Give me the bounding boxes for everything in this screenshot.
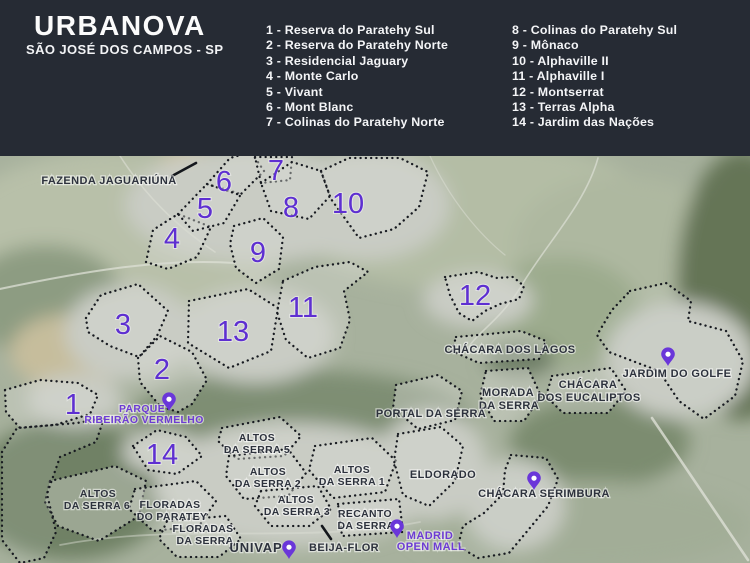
area-number-2: 2 [154,354,170,386]
header-banner: URBANOVA SÃO JOSÉ DOS CAMPOS - SP 1 - Re… [0,0,750,156]
map-label-floradas-do-paratey-1: FLORADAS [140,500,201,511]
map-label-altos-da-serra-6-2: DA SERRA 6 [64,501,130,512]
page-subtitle: SÃO JOSÉ DOS CAMPOS - SP [26,42,223,57]
map-label-univap: UNIVAP [230,540,283,555]
legend-item-9: 9 - Mônaco [512,38,677,53]
area-number-7: 7 [268,155,284,187]
legend-item-12: 12 - Montserrat [512,85,677,100]
map-label-floradas-da-serra-1: FLORADAS [173,524,234,535]
area-number-1: 1 [65,389,81,421]
map-label-chacara-dos-eucaliptos-2: DOS EUCALIPTOS [537,392,640,404]
area-number-6: 6 [216,166,232,198]
map-label-recanto-da-serra-2: DA SERRA [337,521,394,532]
legend-item-13: 13 - Terras Alpha [512,100,677,115]
map-label-jardim-do-golfe: JARDIM DO GOLFE [623,368,732,380]
map-label-altos-da-serra-1-1: ALTOS [334,465,370,476]
map-label-altos-da-serra-5-1: ALTOS [239,433,275,444]
map-label-chacara-dos-lagos: CHÁCARA DOS LAGOS [444,343,575,356]
map-label-altos-da-serra-2-1: ALTOS [250,467,286,478]
map-label-parque-ribeirao-vermelho-2: RIBEIRÃO VERMELHO [84,413,203,426]
map-label-chacara-serimbura: CHÁCARA SERIMBURA [478,487,610,500]
map-label-altos-da-serra-6-1: ALTOS [80,489,116,500]
legend-item-8: 8 - Colinas do Paratehy Sul [512,23,677,38]
legend-item-2: 2 - Reserva do Paratehy Norte [266,38,448,53]
area-number-4: 4 [164,223,180,255]
map-label-parque-ribeirao-vermelho-1: PARQUE [119,404,165,415]
area-number-11: 11 [288,292,318,324]
map-label-eldorado: ELDORADO [410,469,476,481]
area-number-10: 10 [332,188,364,220]
legend-item-1: 1 - Reserva do Paratehy Sul [266,23,448,38]
map-label-fazenda-jaguariuna: FAZENDA JAGUARIÚNA [41,174,176,187]
map-label-altos-da-serra-3-1: ALTOS [278,495,314,506]
map-label-floradas-do-paratey-2: DO PARATEY [137,512,208,523]
area-number-5: 5 [197,193,213,225]
legend-item-10: 10 - Alphaville II [512,54,677,69]
map-label-madrid-open-mall-2: OPEN MALL [397,541,465,553]
legend-item-11: 11 - Alphaville I [512,69,677,84]
legend-item-4: 4 - Monte Carlo [266,69,448,84]
map-label-beija-flor: BEIJA-FLOR [309,542,379,554]
map-label-altos-da-serra-3-2: DA SERRA 3 [264,507,330,518]
map-label-chacara-dos-eucaliptos-1: CHÁCARA [559,378,617,391]
map-label-recanto-da-serra-1: RECANTO [338,509,392,520]
legend-column-1: 1 - Reserva do Paratehy Sul 2 - Reserva … [266,23,448,131]
legend-item-3: 3 - Residencial Jaguary [266,54,448,69]
map-label-floradas-da-serra-2: DA SERRA [176,536,233,547]
map-label-morada-da-serra-1: MORADA [482,387,534,399]
area-number-9: 9 [250,237,266,269]
legend-column-2: 8 - Colinas do Paratehy Sul 9 - Mônaco 1… [512,23,677,131]
legend-item-14: 14 - Jardim das Nações [512,115,677,130]
urbanova-map-infographic: 1 2 3 4 5 6 7 8 9 10 11 12 13 14 FAZENDA… [0,0,750,563]
page-title: URBANOVA [34,10,206,42]
legend-item-5: 5 - Vivant [266,85,448,100]
map-label-altos-da-serra-5-2: DA SERRA 5 [224,445,290,456]
legend-item-7: 7 - Colinas do Paratehy Norte [266,115,448,130]
map-label-altos-da-serra-2-2: DA SERRA 2 [235,479,301,490]
map-label-portal-da-serra: PORTAL DA SERRA [376,408,486,420]
area-number-13: 13 [217,316,249,348]
area-number-8: 8 [283,192,299,224]
area-number-3: 3 [115,309,131,341]
area-number-12: 12 [459,280,491,312]
map-label-altos-da-serra-1-2: DA SERRA 1 [319,477,385,488]
legend-item-6: 6 - Mont Blanc [266,100,448,115]
area-number-14: 14 [146,439,178,471]
map-label-morada-da-serra-2: DA SERRA [479,400,539,412]
